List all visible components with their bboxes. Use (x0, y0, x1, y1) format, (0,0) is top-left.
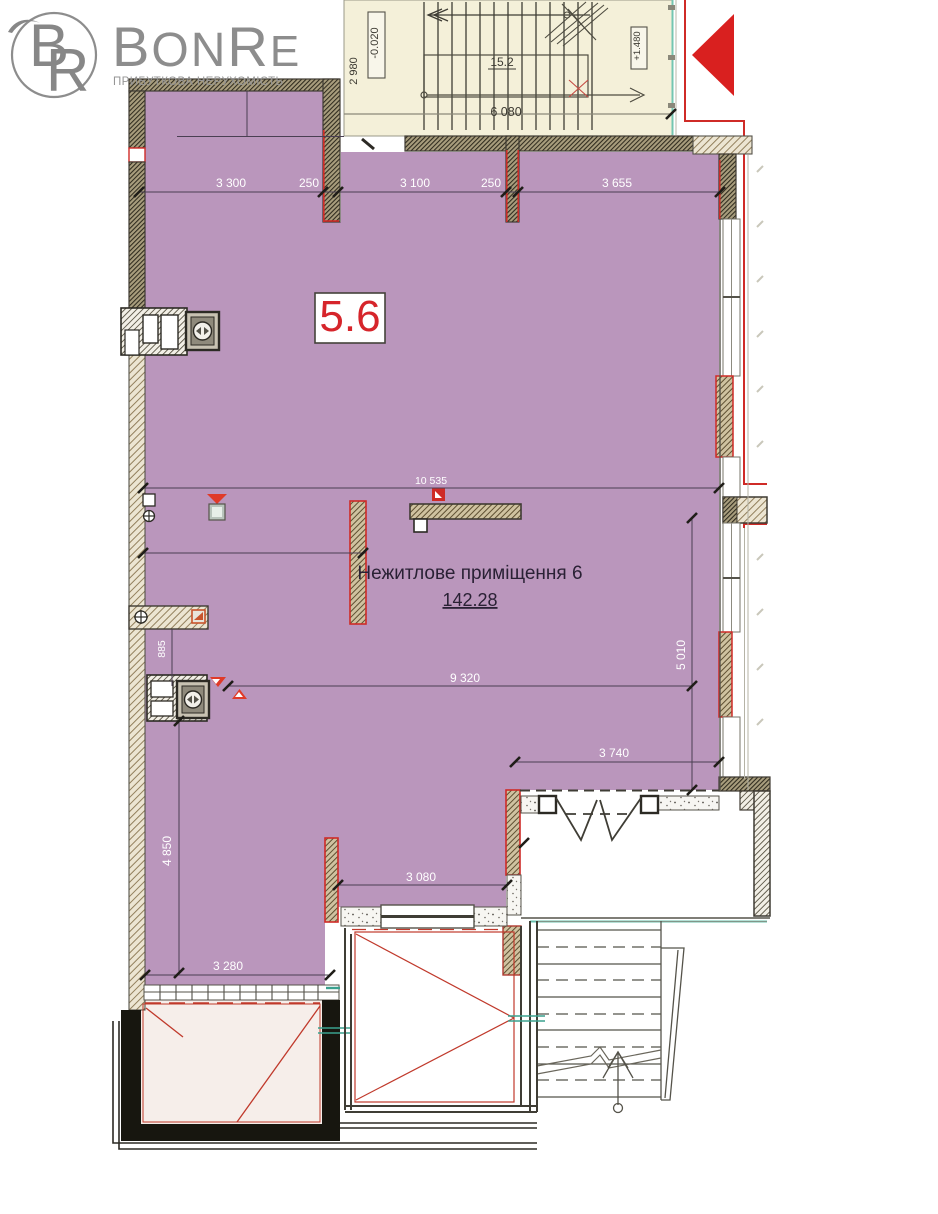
svg-text:3 655: 3 655 (602, 176, 632, 190)
svg-text:3 740: 3 740 (599, 746, 629, 760)
svg-text:15.2: 15.2 (490, 55, 514, 69)
svg-text:ПРИБУТКОВА НЕРУХОМІСТЬ: ПРИБУТКОВА НЕРУХОМІСТЬ (113, 76, 284, 88)
svg-text:885: 885 (156, 640, 168, 658)
svg-text:3 280: 3 280 (213, 959, 243, 973)
svg-text:+1.480: +1.480 (632, 31, 643, 60)
svg-text:R: R (46, 37, 89, 104)
svg-text:3 300: 3 300 (216, 176, 246, 190)
svg-text:5.6: 5.6 (319, 292, 380, 341)
svg-text:5 010: 5 010 (674, 640, 688, 670)
svg-text:9 320: 9 320 (450, 671, 480, 685)
svg-text:10 535: 10 535 (415, 475, 447, 487)
svg-text:142.28: 142.28 (442, 590, 497, 610)
svg-text:6 080: 6 080 (490, 105, 521, 119)
svg-text:4 850: 4 850 (160, 836, 174, 866)
svg-text:250: 250 (481, 176, 501, 190)
svg-text:3 100: 3 100 (400, 176, 430, 190)
svg-text:-0.020: -0.020 (369, 27, 381, 58)
svg-text:250: 250 (299, 176, 319, 190)
svg-text:Нежитлове приміщення 6: Нежитлове приміщення 6 (357, 563, 582, 584)
svg-text:3 080: 3 080 (406, 870, 436, 884)
svg-text:2 980: 2 980 (348, 57, 360, 85)
